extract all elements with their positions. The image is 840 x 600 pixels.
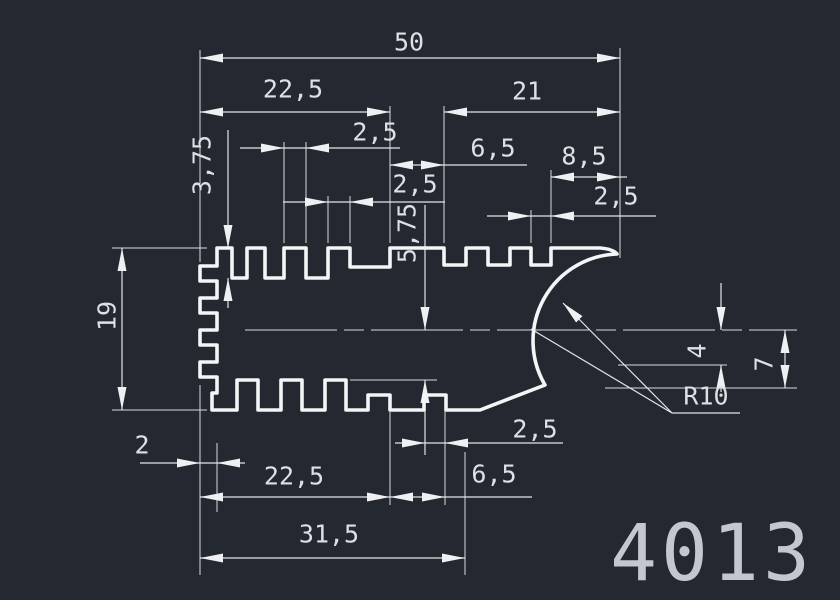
arrowhead xyxy=(367,108,390,117)
dim-right-height: 7 xyxy=(750,356,779,371)
heatsink-profile-outline xyxy=(200,248,617,410)
arrowhead xyxy=(217,459,240,468)
arrowhead xyxy=(551,173,574,182)
arrowhead xyxy=(402,439,425,448)
dim-bottom-span-wide: 31,5 xyxy=(299,520,359,549)
radius-arrowhead xyxy=(560,300,583,323)
dim-bottom-offset-mid: 6,5 xyxy=(471,460,516,489)
dim-top-fin-pitch: 2,5 xyxy=(352,118,397,147)
dim-top-slot-last: 2,5 xyxy=(593,182,638,211)
arrowhead xyxy=(200,54,223,63)
arrowhead xyxy=(118,248,127,271)
heatsink-profile-drawing: 50 22,5 21 2,5 6,5 8,5 2,5 2,5 3,75 5,75… xyxy=(0,0,840,600)
arrowhead xyxy=(118,387,127,410)
arrowhead xyxy=(421,307,430,330)
dimension-lines xyxy=(122,58,785,558)
arrowhead xyxy=(177,459,200,468)
arrowhead xyxy=(224,225,233,248)
dimension-arrowheads xyxy=(118,54,790,563)
dim-tooth-depth: 2 xyxy=(134,431,149,460)
dim-overall-width: 50 xyxy=(394,28,424,57)
dim-bottom-slot: 2,5 xyxy=(512,415,557,444)
dim-top-span-left: 22,5 xyxy=(263,75,323,104)
arrowhead xyxy=(597,173,620,182)
part-number: 4013 xyxy=(610,509,814,599)
arrowhead xyxy=(200,108,223,117)
arrowhead xyxy=(781,330,790,353)
dim-mid-slot-depth: 5,75 xyxy=(393,203,422,263)
dim-top-offset-mid: 6,5 xyxy=(470,134,515,163)
arrowhead xyxy=(200,554,223,563)
dim-corner-radius: R10 xyxy=(683,382,728,411)
dim-top-slot-depth: 3,75 xyxy=(188,135,217,195)
arrowhead xyxy=(367,493,390,502)
arrowhead xyxy=(200,493,223,502)
arrowhead xyxy=(442,554,465,563)
arrowhead xyxy=(261,144,284,153)
arrowhead xyxy=(390,161,413,170)
arrowhead xyxy=(350,198,373,207)
arrowhead xyxy=(305,198,328,207)
arrowhead xyxy=(597,54,620,63)
dim-right-step: 4 xyxy=(683,343,712,358)
arrowhead xyxy=(444,108,467,117)
arrowhead xyxy=(508,212,531,221)
dim-bottom-span-left: 22,5 xyxy=(264,462,324,491)
arrowhead xyxy=(390,493,413,502)
dimension-texts: 50 22,5 21 2,5 6,5 8,5 2,5 2,5 3,75 5,75… xyxy=(93,28,779,549)
arrowhead xyxy=(781,365,790,388)
dim-overall-height: 19 xyxy=(93,301,122,331)
arrowhead xyxy=(306,144,329,153)
arrowhead xyxy=(551,212,574,221)
dim-top-fin-width: 2,5 xyxy=(392,170,437,199)
arrowhead xyxy=(224,278,233,301)
arrowhead xyxy=(717,307,726,330)
dim-top-span-right: 21 xyxy=(512,77,542,106)
arrowhead xyxy=(445,439,468,448)
arrowhead xyxy=(422,493,445,502)
dim-top-plain-span: 8,5 xyxy=(561,142,606,171)
cad-drawing-canvas: 50 22,5 21 2,5 6,5 8,5 2,5 2,5 3,75 5,75… xyxy=(0,0,840,600)
arrowhead xyxy=(597,108,620,117)
arrowhead xyxy=(421,161,444,170)
